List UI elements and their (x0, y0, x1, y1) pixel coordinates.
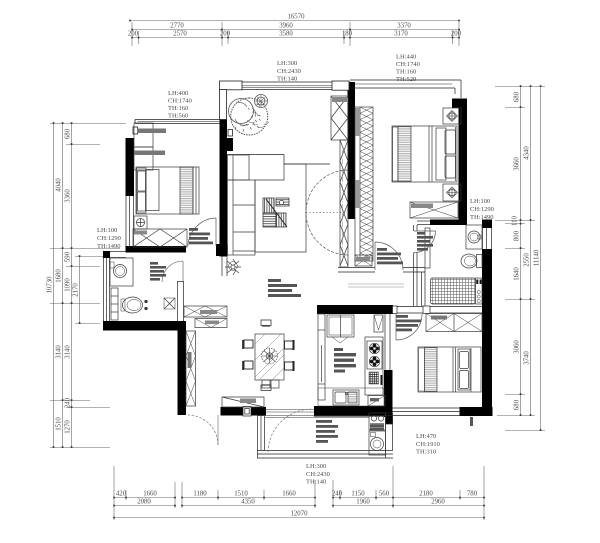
svg-text:10730: 10730 (47, 276, 54, 294)
svg-text:11140: 11140 (534, 249, 541, 266)
svg-text:TH:160: TH:160 (168, 105, 188, 112)
svg-text:1660: 1660 (282, 491, 296, 498)
svg-text:LH:300: LH:300 (277, 60, 297, 67)
svg-text:3660: 3660 (514, 157, 521, 171)
svg-text:3740: 3740 (524, 351, 531, 365)
svg-text:LH:440: LH:440 (396, 54, 416, 61)
svg-text:CH:2430: CH:2430 (277, 68, 301, 75)
svg-text:CH:1290: CH:1290 (97, 235, 121, 242)
svg-text:2570: 2570 (173, 31, 187, 38)
svg-text:590: 590 (65, 251, 72, 262)
svg-text:1180: 1180 (193, 491, 207, 498)
svg-text:3140: 3140 (65, 345, 72, 359)
svg-text:780: 780 (467, 491, 478, 498)
svg-text:560: 560 (379, 491, 390, 498)
svg-text:CH:1290: CH:1290 (470, 206, 494, 213)
svg-text:CH:1910: CH:1910 (416, 441, 440, 448)
svg-text:3140: 3140 (56, 345, 63, 359)
svg-text:180: 180 (342, 31, 353, 38)
svg-text:200: 200 (128, 31, 139, 38)
svg-text:3060: 3060 (514, 340, 521, 354)
svg-text:CH:1740: CH:1740 (396, 61, 420, 68)
svg-text:TH:140: TH:140 (306, 479, 326, 486)
svg-text:TH:140: TH:140 (277, 76, 297, 83)
svg-text:1090: 1090 (65, 278, 72, 292)
svg-text:2550: 2550 (524, 253, 531, 267)
svg-text:3370: 3370 (397, 23, 411, 30)
svg-text:240: 240 (332, 491, 343, 498)
svg-text:16570: 16570 (288, 14, 306, 21)
svg-text:TH:1490: TH:1490 (470, 214, 493, 221)
svg-text:LH:470: LH:470 (416, 433, 436, 440)
svg-text:1510: 1510 (234, 491, 248, 498)
svg-text:4350: 4350 (241, 499, 255, 506)
svg-text:2180: 2180 (419, 491, 433, 498)
svg-text:680: 680 (514, 399, 521, 410)
svg-text:240: 240 (65, 397, 72, 408)
svg-text:CH:2430: CH:2430 (306, 471, 330, 478)
svg-text:200: 200 (451, 31, 462, 38)
svg-text:3580: 3580 (279, 31, 293, 38)
svg-text:800: 800 (514, 230, 521, 241)
svg-text:TH:160: TH:160 (396, 69, 416, 76)
svg-text:3360: 3360 (65, 189, 72, 203)
svg-text:1150: 1150 (351, 491, 365, 498)
svg-text:1510: 1510 (56, 417, 63, 431)
svg-text:2960: 2960 (431, 499, 445, 506)
svg-text:LH:100: LH:100 (97, 227, 117, 234)
svg-text:TH:1490: TH:1490 (97, 243, 120, 250)
svg-text:12070: 12070 (291, 511, 309, 518)
svg-text:LH:300: LH:300 (306, 463, 326, 470)
svg-text:1640: 1640 (514, 267, 521, 281)
svg-text:420: 420 (116, 491, 127, 498)
svg-text:3960: 3960 (279, 23, 293, 30)
svg-text:1960: 1960 (356, 499, 370, 506)
svg-text:2170: 2170 (73, 283, 80, 297)
svg-text:1660: 1660 (143, 491, 157, 498)
svg-text:4340: 4340 (524, 146, 531, 160)
svg-text:3170: 3170 (394, 31, 408, 38)
svg-text:680: 680 (514, 91, 521, 102)
svg-text:TH:520: TH:520 (396, 76, 416, 83)
svg-text:TH:310: TH:310 (416, 449, 436, 456)
svg-text:200: 200 (220, 31, 231, 38)
svg-text:2080: 2080 (137, 499, 151, 506)
svg-text:4040: 4040 (56, 178, 63, 192)
svg-text:1270: 1270 (65, 420, 72, 434)
svg-text:TH:560: TH:560 (168, 113, 188, 120)
svg-text:LH:400: LH:400 (168, 90, 188, 97)
svg-text:LH:100: LH:100 (470, 198, 490, 205)
svg-text:1680: 1680 (56, 269, 63, 283)
svg-text:2770: 2770 (170, 23, 184, 30)
svg-text:110: 110 (512, 215, 519, 226)
svg-text:CH:1740: CH:1740 (168, 98, 192, 105)
svg-text:680: 680 (65, 128, 72, 139)
